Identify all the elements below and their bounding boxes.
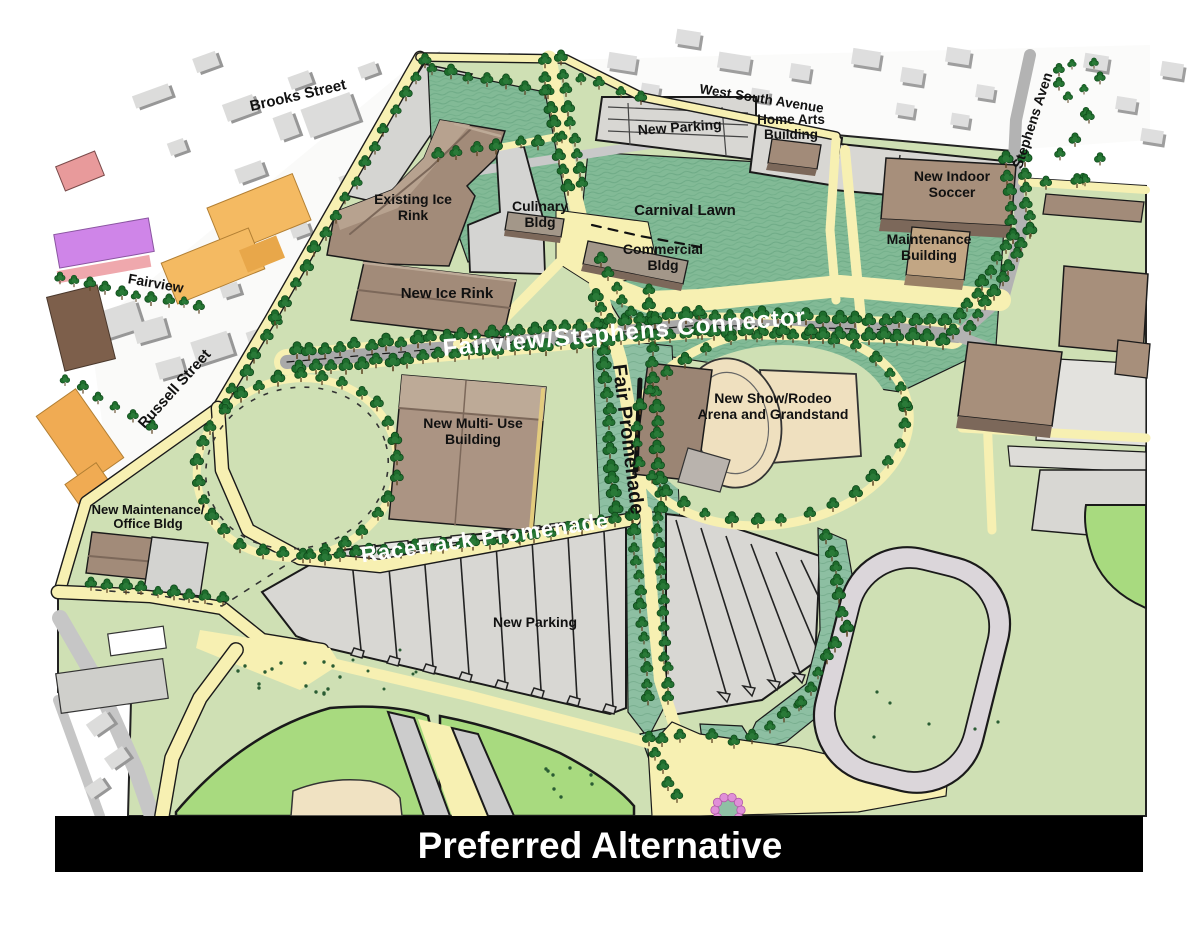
svg-text:New Maintenance/: New Maintenance/ [92,502,205,517]
svg-text:Building: Building [764,127,818,142]
svg-text:New Show/Rodeo: New Show/Rodeo [714,390,831,406]
svg-text:New Ice Rink: New Ice Rink [401,285,494,302]
svg-text:Preferred Alternative: Preferred Alternative [418,825,783,866]
svg-text:Arena and Grandstand: Arena and Grandstand [698,406,849,422]
svg-text:Office Bldg: Office Bldg [113,516,182,531]
svg-text:Soccer: Soccer [929,184,976,200]
svg-text:Maintenance: Maintenance [887,231,972,247]
svg-text:Home Arts: Home Arts [757,112,825,127]
svg-text:New Indoor: New Indoor [914,168,991,184]
svg-text:Existing Ice: Existing Ice [374,191,452,207]
svg-text:Commercial: Commercial [623,241,703,257]
svg-text:Building: Building [445,431,501,447]
svg-text:Carnival Lawn: Carnival Lawn [634,202,736,219]
svg-text:New Parking: New Parking [493,614,577,630]
svg-text:New Multi- Use: New Multi- Use [423,415,523,431]
svg-text:Bldg: Bldg [524,214,555,230]
svg-text:Bldg: Bldg [647,257,678,273]
svg-text:Culinary: Culinary [512,198,568,214]
svg-text:Rink: Rink [398,207,429,223]
svg-text:Building: Building [901,247,957,263]
